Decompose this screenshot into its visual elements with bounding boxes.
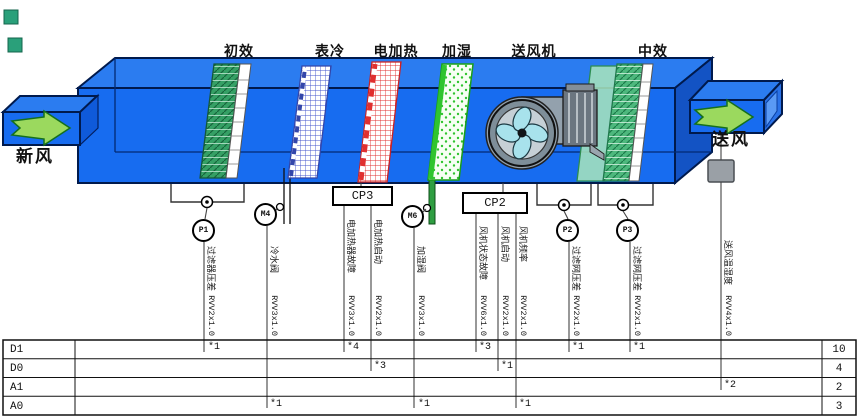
wire-cable: RVV3x1.0 — [415, 295, 427, 336]
corner-marks — [4, 10, 22, 52]
wire-cable: RVV2x1.0 — [205, 295, 217, 336]
io-row-label-a0: A0 — [10, 401, 23, 414]
wire-cable: RVV2x1.0 — [570, 295, 582, 336]
qty-marker: *1 — [633, 342, 645, 354]
qty-marker: *3 — [374, 361, 386, 373]
wire-name: 送风温湿度 — [722, 240, 734, 285]
qty-marker: *1 — [572, 342, 584, 354]
sensor-p1: P1 — [192, 219, 215, 242]
wire-name: 风机启动 — [499, 226, 511, 262]
wire-label-supply-temp-humidity: 送风温湿度RVV4x1.0 — [722, 240, 734, 336]
wire-name: 过滤器压差 — [205, 246, 217, 291]
wire-cable: RVV2x1.0 — [631, 295, 643, 336]
wire-cable: RVV6x1.0 — [477, 295, 489, 336]
diagram-graphics — [0, 0, 859, 418]
io-total-d0: 4 — [824, 363, 854, 376]
section-label-primary-filter: 初效 — [199, 41, 279, 61]
supply-air-label: 送风 — [712, 125, 750, 150]
wire-cable: RVV2x1.0 — [517, 295, 529, 336]
io-total-a1: 2 — [824, 382, 854, 395]
qty-marker: *3 — [479, 342, 491, 354]
section-label-humidifier: 加湿 — [417, 41, 497, 61]
wire-cable: RVV4x1.0 — [722, 295, 734, 336]
section-label-medium-filter: 中效 — [613, 41, 693, 61]
qty-marker: *1 — [418, 399, 430, 411]
qty-marker: *1 — [270, 399, 282, 411]
wire-name: 冷水阀 — [268, 246, 280, 273]
wire-label-humidifier-valve: 加湿阀RVV3x1.0 — [415, 246, 427, 336]
wire-label-chilled-water-valve: 冷水阀RVV3x1.0 — [268, 246, 280, 336]
wire-label-fan-start: 风机启动RVV2x1.0 — [499, 226, 511, 336]
controller-cp2: CP2 — [462, 192, 528, 214]
wire-label-heater-start: 电加热启动RVV2x1.0 — [372, 219, 384, 336]
wire-label-fan-status-fault: 风机状态故障RVV6x1.0 — [477, 226, 489, 336]
ahu-control-diagram: 初效 表冷 电加热 加湿 送风机 中效 新风 送风 CP3 CP2 P1 M4 … — [0, 0, 859, 418]
qty-marker: *1 — [208, 342, 220, 354]
io-row-label-d0: D0 — [10, 363, 23, 376]
io-row-label-a1: A1 — [10, 382, 23, 395]
supply-air-sensor-box — [708, 160, 734, 182]
io-total-d1: 10 — [824, 344, 854, 357]
wire-name: 过滤网压差 — [570, 246, 582, 291]
controller-cp3: CP3 — [332, 186, 393, 206]
wire-label-fan-frequency: 风机频率RVV2x1.0 — [517, 226, 529, 336]
wire-name: 风机频率 — [517, 226, 529, 262]
wire-name: 风机状态故障 — [477, 226, 489, 280]
qty-marker: *1 — [501, 361, 513, 373]
io-row-label-d1: D1 — [10, 344, 23, 357]
sensor-p3: P3 — [616, 219, 639, 242]
qty-marker: *2 — [724, 380, 736, 392]
wire-name: 电加热启动 — [372, 219, 384, 264]
wire-label-fan-filter-dp: 过滤网压差RVV2x1.0 — [570, 246, 582, 336]
sensor-m4: M4 — [254, 203, 277, 226]
qty-marker: *4 — [347, 342, 359, 354]
fresh-air-label: 新风 — [16, 142, 54, 167]
wire-name: 加湿阀 — [415, 246, 427, 273]
wire-label-filter-dp: 过滤器压差RVV2x1.0 — [205, 246, 217, 336]
section-label-supply-fan: 送风机 — [494, 41, 574, 61]
wire-label-medium-filter-dp: 过滤网压差RVV2x1.0 — [631, 246, 643, 336]
wire-cable: RVV2x1.0 — [499, 295, 511, 336]
wire-name: 过滤网压差 — [631, 246, 643, 291]
sensor-p2: P2 — [556, 219, 579, 242]
wire-cable: RVV2x1.0 — [372, 295, 384, 336]
wire-cable: RVV3x1.0 — [345, 295, 357, 336]
wire-cable: RVV3x1.0 — [268, 295, 280, 336]
sensor-m6: M6 — [401, 205, 424, 228]
wire-name: 电加热器故障 — [345, 219, 357, 273]
qty-marker: *1 — [519, 399, 531, 411]
wire-label-heater-fault: 电加热器故障RVV3x1.0 — [345, 219, 357, 336]
io-total-a0: 3 — [824, 401, 854, 414]
